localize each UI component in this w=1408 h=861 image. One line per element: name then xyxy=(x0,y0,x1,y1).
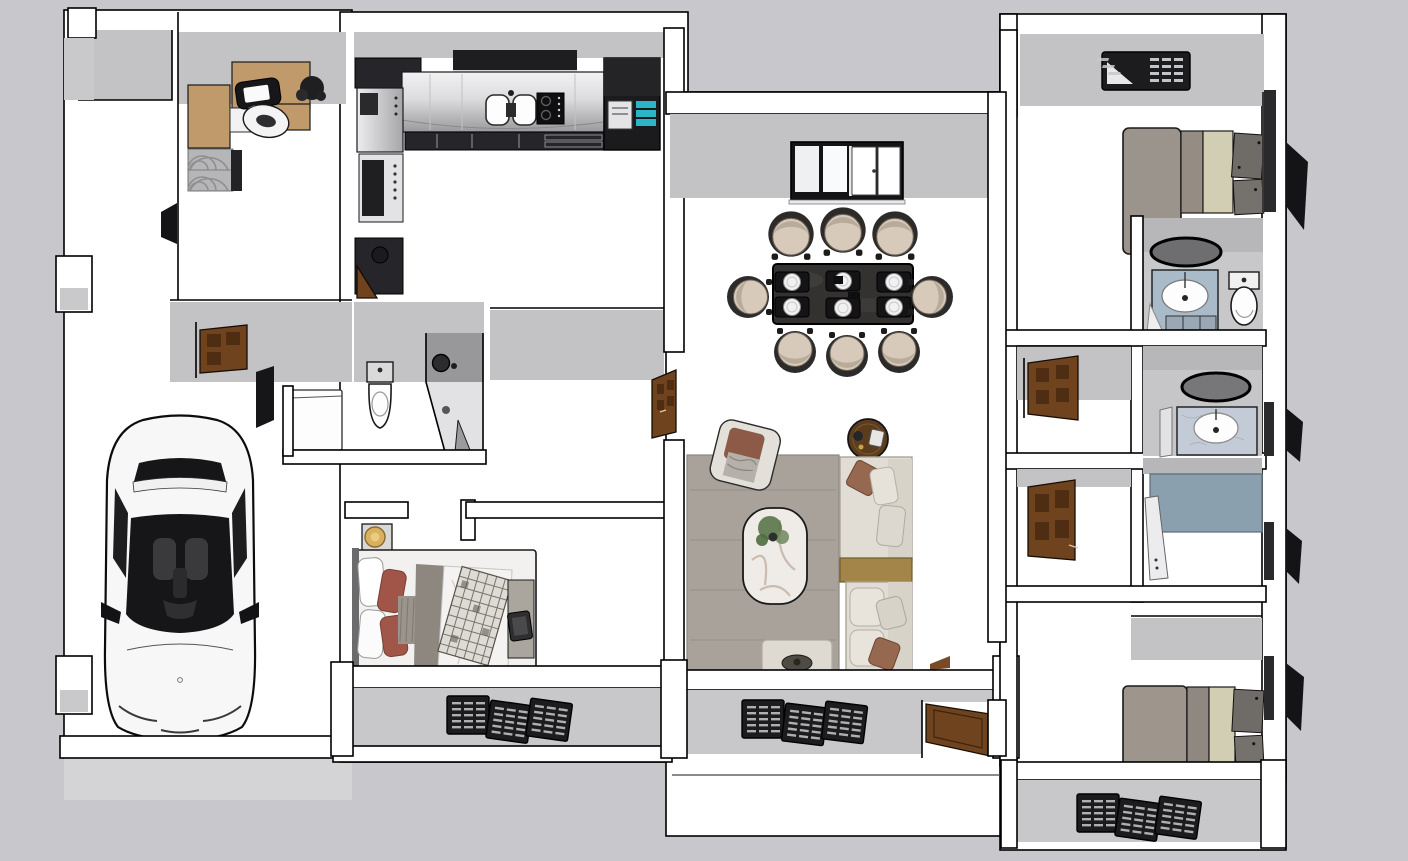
pillar xyxy=(1261,760,1286,848)
louver-shutter xyxy=(447,696,489,734)
place-setting xyxy=(877,297,911,317)
right-divider-wall xyxy=(1131,216,1143,602)
louver-shutter xyxy=(526,698,573,741)
shower-head xyxy=(433,355,450,372)
floor-plan-stage: Top-down 3D render of a furnished apartm… xyxy=(0,0,1408,861)
base-cabinets xyxy=(405,132,604,150)
foot-bench xyxy=(1234,735,1263,764)
range-hood xyxy=(453,50,577,72)
glass-partition xyxy=(1160,407,1172,457)
place-setting xyxy=(775,272,809,292)
bathroom1-west-stub xyxy=(283,386,293,456)
junction-pillar xyxy=(331,662,353,756)
ac-louver-unit xyxy=(1096,52,1190,90)
ottoman xyxy=(762,640,832,673)
coffee-table xyxy=(743,508,807,604)
bathroom1-south-wall xyxy=(283,450,486,464)
corridor-door-2 xyxy=(1028,480,1078,560)
place-setting xyxy=(877,272,911,292)
shower-drain xyxy=(442,406,450,414)
refrigerator xyxy=(604,58,660,150)
cooktop xyxy=(537,93,564,124)
gold-console xyxy=(840,558,912,582)
dark-wall-panel xyxy=(256,366,274,428)
tall-appliance-column xyxy=(355,88,403,298)
louver-shutter xyxy=(742,700,784,738)
car xyxy=(101,416,259,741)
car-seat-left xyxy=(153,538,176,580)
floor-plan-render: Top-down 3D render of a furnished apartm… xyxy=(0,0,1408,861)
oval-mirror xyxy=(1182,373,1250,401)
foot-bench xyxy=(1232,133,1265,179)
louver-shutter xyxy=(1155,796,1202,839)
louver-shutter xyxy=(486,700,533,743)
louver-shutter xyxy=(1115,798,1162,841)
garage-apron xyxy=(64,758,352,800)
l-shaped-sofa xyxy=(840,457,912,674)
toilet-2 xyxy=(1229,272,1259,325)
hall-door xyxy=(652,370,676,438)
office-rug xyxy=(188,149,233,191)
side-table xyxy=(848,419,888,459)
bed-3 xyxy=(1123,686,1264,766)
south-band-middle xyxy=(331,662,672,762)
vanity-sink xyxy=(1147,270,1218,332)
bookshelf xyxy=(231,150,242,191)
place-setting xyxy=(775,297,809,317)
fridge-shelf-1 xyxy=(636,101,656,108)
dining-window xyxy=(789,142,905,204)
garage-south-wall xyxy=(60,736,354,758)
porch-pillar xyxy=(68,8,96,38)
bed-unmade xyxy=(352,548,536,668)
place-setting xyxy=(826,298,860,318)
louver-shutter xyxy=(1077,794,1119,832)
fridge-shelf-2 xyxy=(636,110,656,117)
foot-bench xyxy=(1233,179,1264,214)
pillar xyxy=(1001,760,1017,848)
car-seat-right xyxy=(185,538,208,580)
terrace-pillar xyxy=(661,660,687,758)
corridor-door-1 xyxy=(1024,356,1078,420)
fridge-shelf-3 xyxy=(636,119,656,126)
oval-mirror xyxy=(1151,238,1221,266)
window-pane xyxy=(878,147,900,195)
window-pane xyxy=(823,146,847,192)
desk-side xyxy=(188,85,230,148)
wet-floor xyxy=(1150,474,1262,532)
bathroom-2 xyxy=(1143,346,1262,457)
louver-shutter xyxy=(781,703,827,746)
dining-table xyxy=(773,264,913,324)
sofa-pillow xyxy=(876,505,906,547)
window-pane xyxy=(795,146,819,192)
foot-bench xyxy=(1232,689,1264,733)
louver-shutter xyxy=(821,701,867,744)
bar-stool xyxy=(372,247,388,263)
hall-wood-door xyxy=(196,322,247,378)
